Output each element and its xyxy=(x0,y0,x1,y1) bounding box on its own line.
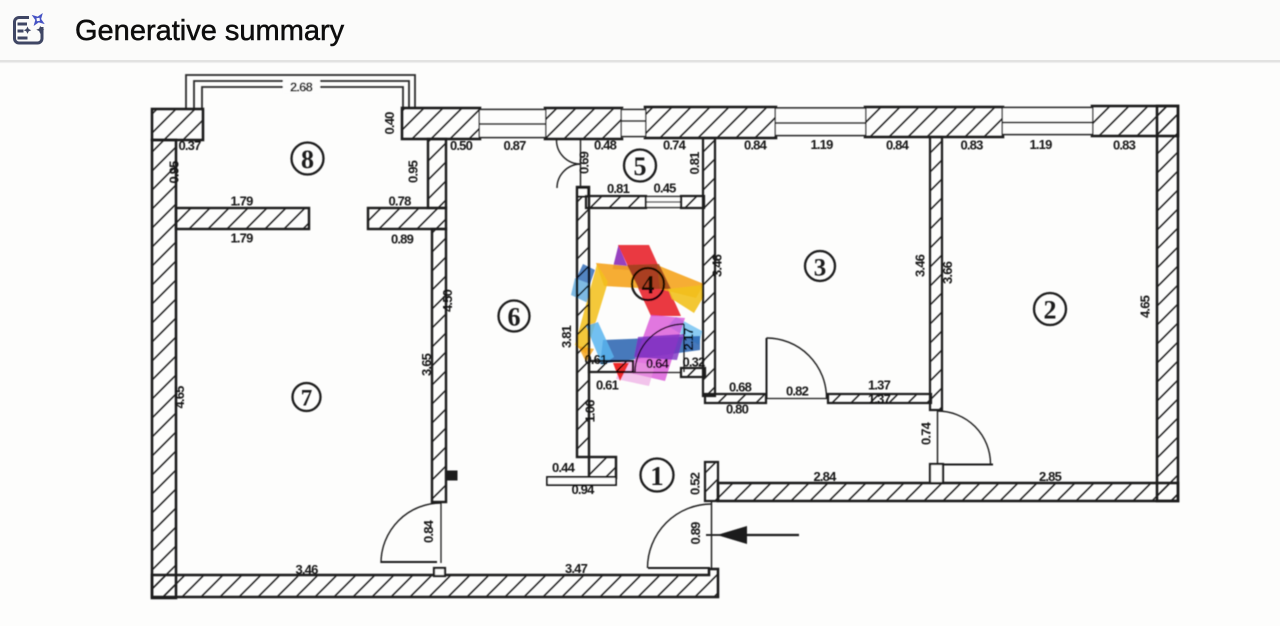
svg-text:8: 8 xyxy=(301,145,314,174)
svg-text:0.68: 0.68 xyxy=(729,380,752,395)
svg-text:0.83: 0.83 xyxy=(1113,138,1136,153)
svg-text:0.81: 0.81 xyxy=(687,152,702,175)
svg-text:7: 7 xyxy=(301,386,313,411)
svg-text:0.84: 0.84 xyxy=(421,519,436,543)
svg-text:3.81: 3.81 xyxy=(559,325,574,348)
svg-text:0.48: 0.48 xyxy=(594,138,617,153)
svg-text:3.47: 3.47 xyxy=(565,561,588,576)
svg-text:3.46: 3.46 xyxy=(295,562,318,577)
svg-text:0.89: 0.89 xyxy=(688,522,703,545)
svg-text:0.50: 0.50 xyxy=(450,138,473,153)
svg-text:6: 6 xyxy=(508,303,521,332)
svg-text:0.84: 0.84 xyxy=(744,138,768,153)
svg-text:1.19: 1.19 xyxy=(1029,137,1052,152)
svg-text:0.40: 0.40 xyxy=(382,112,397,135)
svg-text:0.61: 0.61 xyxy=(596,378,619,393)
svg-text:0.74: 0.74 xyxy=(663,138,687,153)
svg-text:3.65: 3.65 xyxy=(419,353,434,376)
svg-text:0.37: 0.37 xyxy=(178,138,201,153)
svg-text:2.85: 2.85 xyxy=(1039,469,1062,484)
svg-text:3.46: 3.46 xyxy=(913,254,928,277)
svg-text:1.37: 1.37 xyxy=(868,392,891,407)
svg-text:0.87: 0.87 xyxy=(503,138,526,153)
svg-text:0.74: 0.74 xyxy=(919,421,934,445)
svg-text:0.32: 0.32 xyxy=(682,355,705,370)
svg-text:0.89: 0.89 xyxy=(391,232,414,247)
svg-text:0.95: 0.95 xyxy=(167,161,182,184)
svg-text:0.82: 0.82 xyxy=(786,384,809,399)
svg-text:0.80: 0.80 xyxy=(726,402,749,417)
svg-text:1.79: 1.79 xyxy=(230,231,253,246)
svg-text:0.45: 0.45 xyxy=(653,181,676,196)
svg-text:0.84: 0.84 xyxy=(886,138,910,153)
svg-text:0.69: 0.69 xyxy=(577,151,592,174)
svg-text:0.83: 0.83 xyxy=(960,138,983,153)
svg-text:1.79: 1.79 xyxy=(230,194,253,209)
svg-text:0.78: 0.78 xyxy=(388,194,411,209)
svg-text:0.81: 0.81 xyxy=(607,181,630,196)
svg-text:0.95: 0.95 xyxy=(406,160,421,183)
svg-text:1.06: 1.06 xyxy=(583,400,598,423)
svg-text:0.52: 0.52 xyxy=(688,472,703,495)
svg-text:2.84: 2.84 xyxy=(813,469,837,484)
svg-text:1: 1 xyxy=(650,461,664,491)
svg-text:1.37: 1.37 xyxy=(868,378,891,393)
svg-text:0.44: 0.44 xyxy=(552,460,576,475)
svg-text:4.65: 4.65 xyxy=(172,386,187,409)
svg-text:Generative summary: Generative summary xyxy=(75,15,345,47)
svg-text:1.19: 1.19 xyxy=(810,137,833,152)
svg-text:4.50: 4.50 xyxy=(440,289,455,312)
svg-text:2: 2 xyxy=(1044,296,1057,325)
svg-text:3: 3 xyxy=(814,255,827,282)
svg-text:3.46: 3.46 xyxy=(710,254,725,277)
svg-text:2.68: 2.68 xyxy=(290,80,313,95)
svg-text:5: 5 xyxy=(634,152,647,181)
svg-text:4.65: 4.65 xyxy=(1138,295,1153,318)
svg-text:0.94: 0.94 xyxy=(571,482,595,497)
svg-text:3.66: 3.66 xyxy=(940,261,955,284)
